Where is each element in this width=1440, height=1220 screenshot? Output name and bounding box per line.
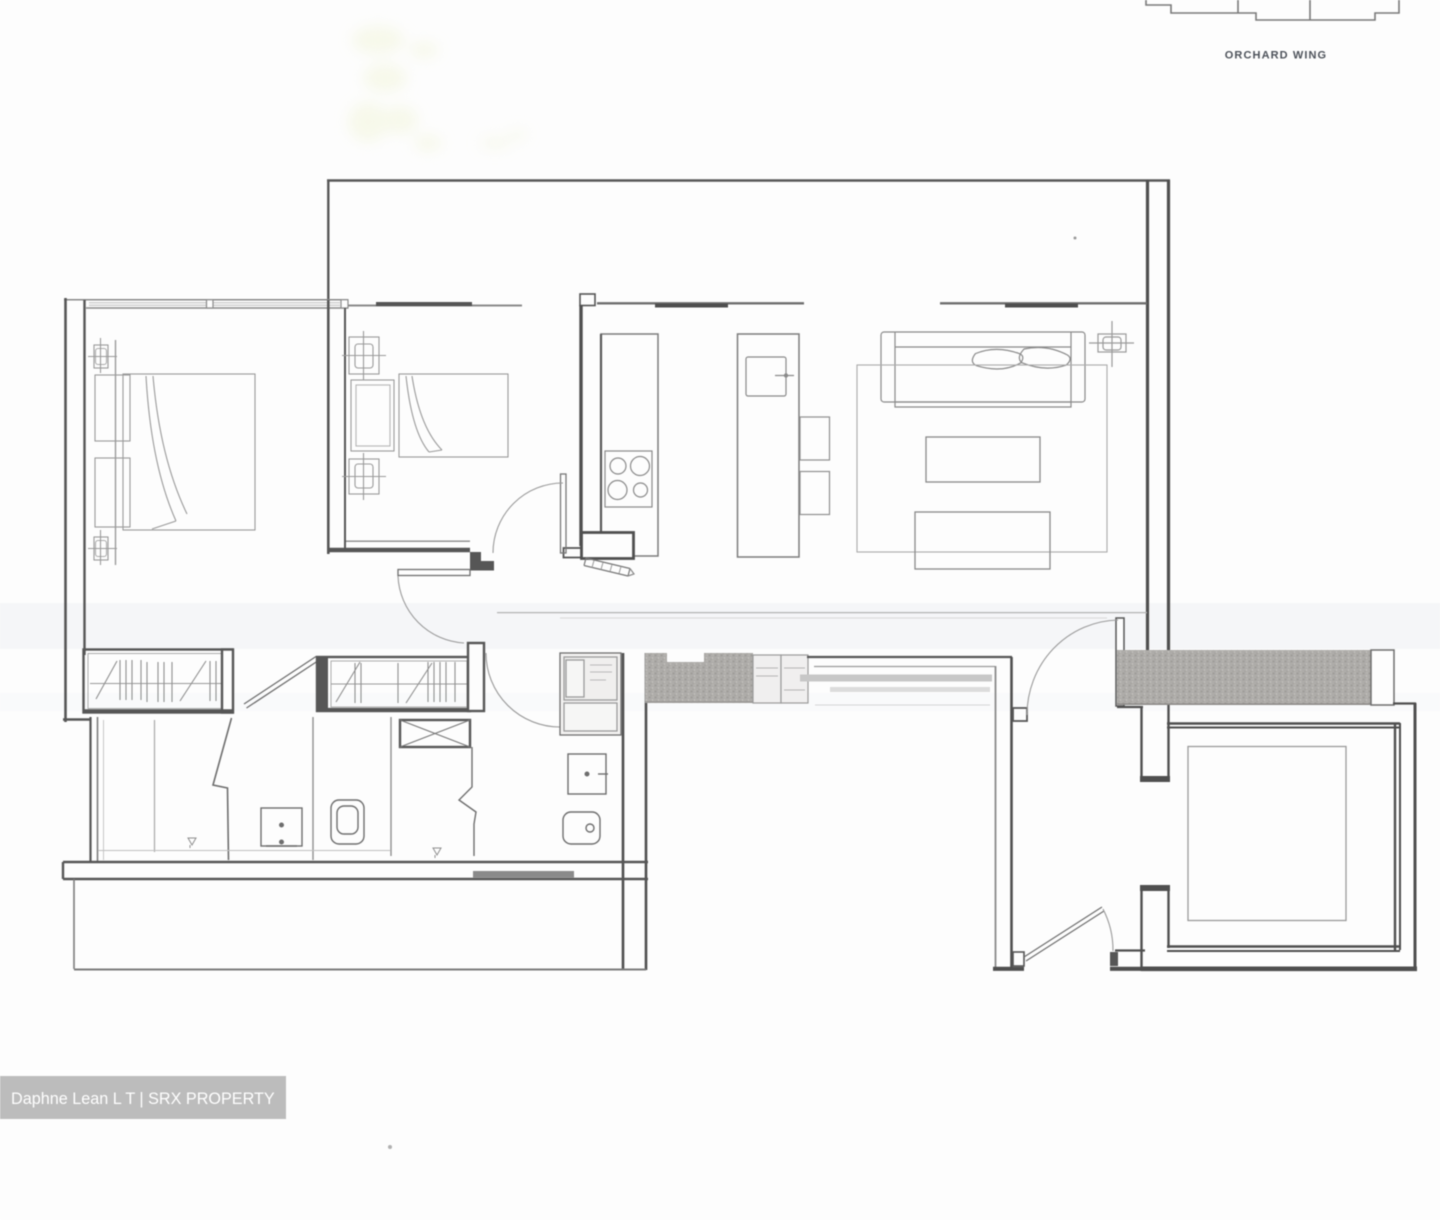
svg-text:Daphne Lean L T | SRX PROPERTY: Daphne Lean L T | SRX PROPERTY [11,1090,275,1108]
svg-text:ORCHARD WING: ORCHARD WING [1225,50,1327,62]
